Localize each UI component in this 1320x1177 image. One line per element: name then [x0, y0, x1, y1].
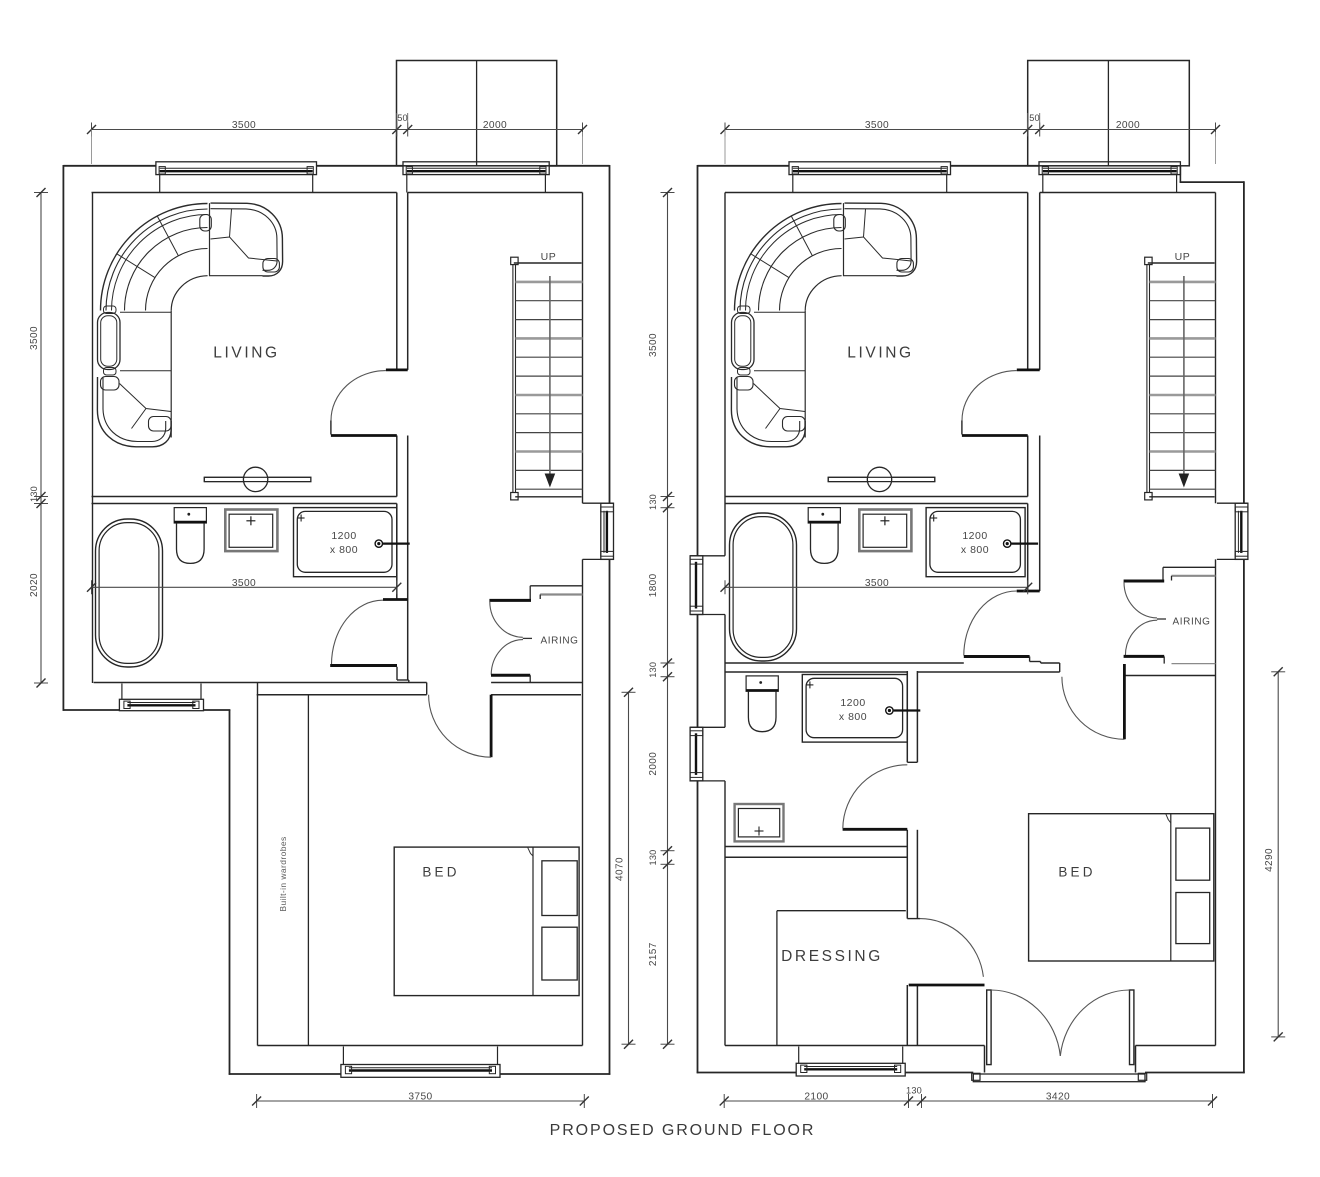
svg-text:LIVING: LIVING: [213, 345, 279, 362]
svg-text:4070: 4070: [615, 857, 626, 881]
svg-text:2000: 2000: [483, 120, 507, 131]
svg-text:1200: 1200: [840, 697, 865, 709]
svg-text:3500: 3500: [29, 326, 40, 350]
svg-text:3500: 3500: [232, 120, 256, 131]
svg-text:1800: 1800: [648, 573, 659, 597]
svg-text:130: 130: [648, 662, 658, 678]
svg-text:LIVING: LIVING: [847, 345, 913, 362]
svg-text:x 800: x 800: [961, 544, 989, 556]
svg-text:UP: UP: [541, 251, 557, 263]
svg-text:AIRING: AIRING: [540, 636, 578, 647]
svg-text:DRESSING: DRESSING: [781, 948, 883, 965]
svg-text:2020: 2020: [29, 573, 40, 597]
svg-text:3500: 3500: [232, 578, 256, 589]
svg-text:130: 130: [648, 850, 658, 866]
svg-text:x 800: x 800: [330, 544, 358, 556]
svg-text:3500: 3500: [865, 578, 889, 589]
svg-text:2000: 2000: [1116, 120, 1140, 131]
svg-text:3420: 3420: [1046, 1092, 1070, 1103]
svg-text:x 800: x 800: [839, 711, 867, 723]
svg-text:1200: 1200: [331, 530, 356, 542]
svg-text:3500: 3500: [865, 120, 889, 131]
svg-text:130: 130: [29, 486, 39, 502]
svg-text:2000: 2000: [648, 752, 659, 776]
svg-text:50: 50: [1029, 113, 1040, 123]
svg-text:AIRING: AIRING: [1172, 617, 1210, 628]
svg-text:2100: 2100: [804, 1092, 828, 1103]
svg-text:Built-in wardrobes: Built-in wardrobes: [278, 836, 288, 911]
svg-text:1200: 1200: [962, 530, 987, 542]
svg-text:UP: UP: [1175, 251, 1191, 263]
svg-text:130: 130: [906, 1086, 922, 1096]
svg-text:BED: BED: [1058, 865, 1095, 880]
svg-text:4290: 4290: [1264, 848, 1275, 872]
svg-text:2157: 2157: [648, 942, 659, 966]
svg-text:3500: 3500: [648, 333, 659, 357]
svg-text:130: 130: [648, 494, 658, 510]
svg-text:50: 50: [397, 113, 408, 123]
svg-text:PROPOSED GROUND FLOOR: PROPOSED GROUND FLOOR: [550, 1122, 816, 1139]
svg-text:BED: BED: [422, 865, 459, 880]
svg-text:3750: 3750: [408, 1092, 432, 1103]
